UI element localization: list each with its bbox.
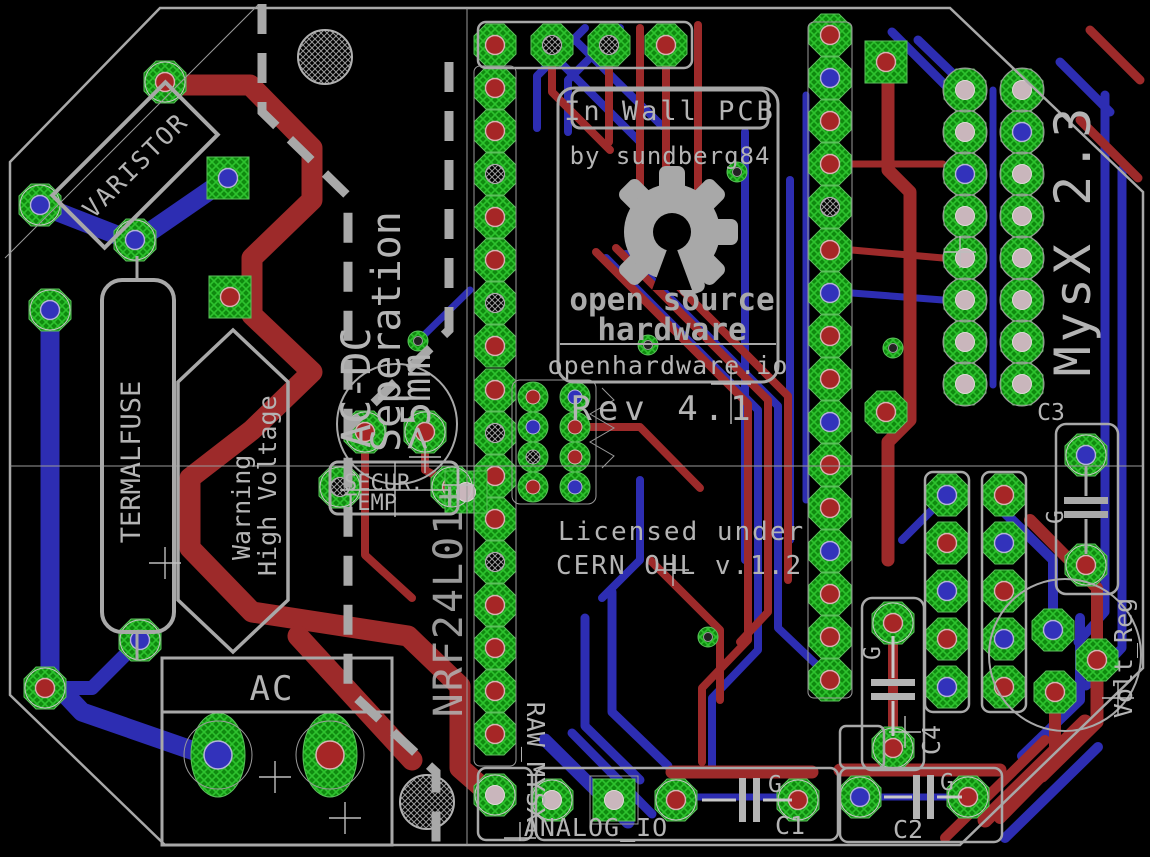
label-termalfuse: TERMALFUSE: [116, 381, 147, 544]
pcb-layout-canvas: VARISTOR: [0, 0, 1150, 857]
label-acdc-sep-line3: >5mm: [394, 354, 440, 450]
label-c1: C1: [775, 811, 805, 840]
label-c1-ground: G: [768, 772, 782, 798]
label-c2: C2: [893, 815, 923, 844]
label-c3: C3: [1037, 400, 1065, 426]
ac-terminal-pads: [191, 713, 357, 797]
oshw-site: openhardware.io: [548, 351, 789, 380]
license-line1: Licensed under: [558, 517, 805, 547]
board-revision: Rev 4.1: [571, 389, 756, 429]
label-warning-line2: High Voltage: [253, 395, 282, 576]
board-byline: by sundberg84: [570, 142, 771, 170]
oshw-text-line2: hardware: [597, 312, 746, 348]
label-c2-ground: G: [940, 770, 954, 796]
license-line2: CERN OHL v.1.2: [556, 551, 803, 581]
label-warning-line1: Warning: [227, 455, 256, 560]
mysx-version-label: MysX 2.3: [1044, 104, 1102, 377]
label-radio: NRF24L01+: [426, 483, 472, 718]
label-c4-ground: G: [860, 646, 886, 660]
label-secur-line2: TEMP: [344, 491, 397, 516]
label-analog-io: ANALOG_IO: [524, 813, 668, 842]
label-c3-ground: G: [1043, 510, 1069, 524]
label-ac-terminal: AC: [250, 669, 295, 709]
label-volt-reg: Volt_Reg: [1109, 598, 1138, 718]
board-title: In Wall PCB: [564, 96, 776, 127]
label-raw-mysx: RAW_MYSX: [521, 702, 550, 822]
label-c4: C4: [917, 725, 946, 755]
oshw-gear-icon: [616, 166, 738, 298]
